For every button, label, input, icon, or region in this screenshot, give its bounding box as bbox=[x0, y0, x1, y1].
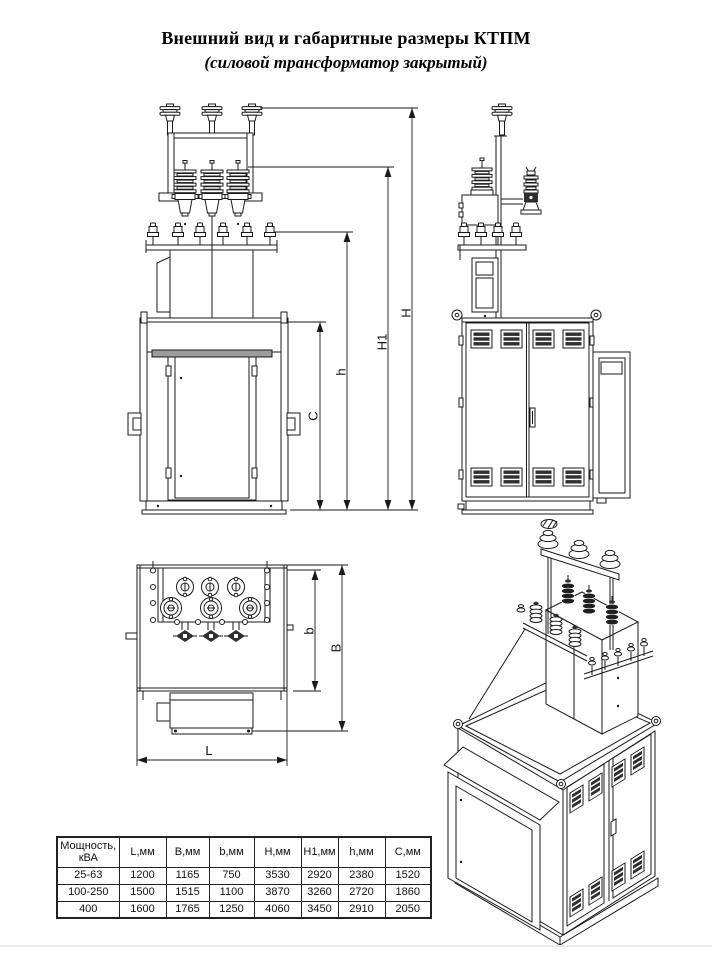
table-cell: 100-250 bbox=[57, 884, 119, 901]
table-cell: 1860 bbox=[385, 884, 431, 901]
dim-label-L: L bbox=[205, 743, 212, 758]
technical-drawing: C h H1 bbox=[0, 0, 712, 953]
table-cell: 2720 bbox=[338, 884, 385, 901]
table-header-cell: H1,мм bbox=[301, 837, 338, 867]
bus-duct bbox=[157, 216, 253, 318]
front-view: C h H1 bbox=[128, 104, 418, 514]
cabinet-front bbox=[128, 312, 300, 514]
table-cell: 2920 bbox=[301, 867, 338, 884]
table-cell: 1765 bbox=[166, 901, 209, 918]
dim-label-b: b bbox=[302, 627, 317, 634]
table-header-cell: Мощность, кВА bbox=[57, 837, 119, 867]
side-insulator bbox=[492, 104, 512, 135]
table-cell: 2910 bbox=[338, 901, 385, 918]
table-row: 25-63 1200 1165 750 3530 2920 2380 1520 bbox=[57, 867, 431, 884]
dim-label-h: h bbox=[334, 368, 349, 375]
table-cell: 2380 bbox=[338, 867, 385, 884]
side-view bbox=[452, 104, 630, 529]
table-cell: 1515 bbox=[166, 884, 209, 901]
table-row: 100-250 1500 1515 1100 3870 3260 2720 18… bbox=[57, 884, 431, 901]
table-header-row: Мощность, кВА L,мм B,мм b,мм Н,мм H1,мм … bbox=[57, 837, 431, 867]
side-arrester bbox=[501, 167, 541, 214]
plan-radiator bbox=[157, 693, 253, 734]
dim-label-H1: H1 bbox=[375, 334, 390, 351]
table-cell: 1500 bbox=[119, 884, 166, 901]
hv-bushings bbox=[172, 161, 251, 226]
table-cell: 1100 bbox=[209, 884, 254, 901]
table-cell: 750 bbox=[209, 867, 254, 884]
table-header-cell: С,мм bbox=[385, 837, 431, 867]
table-header-cell: B,мм bbox=[166, 837, 209, 867]
table-header-cell: b,мм bbox=[209, 837, 254, 867]
table-cell: 2050 bbox=[385, 901, 431, 918]
dim-label-B: B bbox=[329, 644, 344, 653]
dim-label-C: C bbox=[306, 411, 321, 420]
table-header-cell: Н,мм bbox=[254, 837, 301, 867]
table-cell: 1165 bbox=[166, 867, 209, 884]
table-cell: 3260 bbox=[301, 884, 338, 901]
table-cell: 400 bbox=[57, 901, 119, 918]
cabinet-side bbox=[452, 310, 601, 501]
table-cell: 3530 bbox=[254, 867, 301, 884]
table-cell: 4060 bbox=[254, 901, 301, 918]
table-cell: 1600 bbox=[119, 901, 166, 918]
plan-view: L b B bbox=[126, 561, 348, 766]
table-cell: 3450 bbox=[301, 901, 338, 918]
table-cell: 25-63 bbox=[57, 867, 119, 884]
side-lv-bushings bbox=[458, 223, 526, 260]
side-base bbox=[458, 501, 593, 514]
table-cell: 3870 bbox=[254, 884, 301, 901]
hv-insulators-top bbox=[160, 104, 262, 135]
table-cell: 1520 bbox=[385, 867, 431, 884]
isometric-view bbox=[444, 530, 661, 945]
side-tap-panel bbox=[472, 258, 498, 317]
page-footer-divider bbox=[0, 945, 712, 947]
grounding-symbol bbox=[541, 520, 557, 529]
side-right-panel bbox=[593, 352, 630, 503]
dim-label-H: H bbox=[399, 308, 414, 317]
dimensions-table: Мощность, кВА L,мм B,мм b,мм Н,мм H1,мм … bbox=[56, 836, 432, 919]
table-row: 400 1600 1765 1250 4060 3450 2910 2050 bbox=[57, 901, 431, 918]
document-page: Внешний вид и габаритные размеры КТПМ (с… bbox=[0, 0, 712, 953]
table-cell: 1250 bbox=[209, 901, 254, 918]
table-cell: 1200 bbox=[119, 867, 166, 884]
table-header-cell: L,мм bbox=[119, 837, 166, 867]
table-header-cell: h,мм bbox=[338, 837, 385, 867]
side-hv-bushing bbox=[471, 158, 493, 195]
